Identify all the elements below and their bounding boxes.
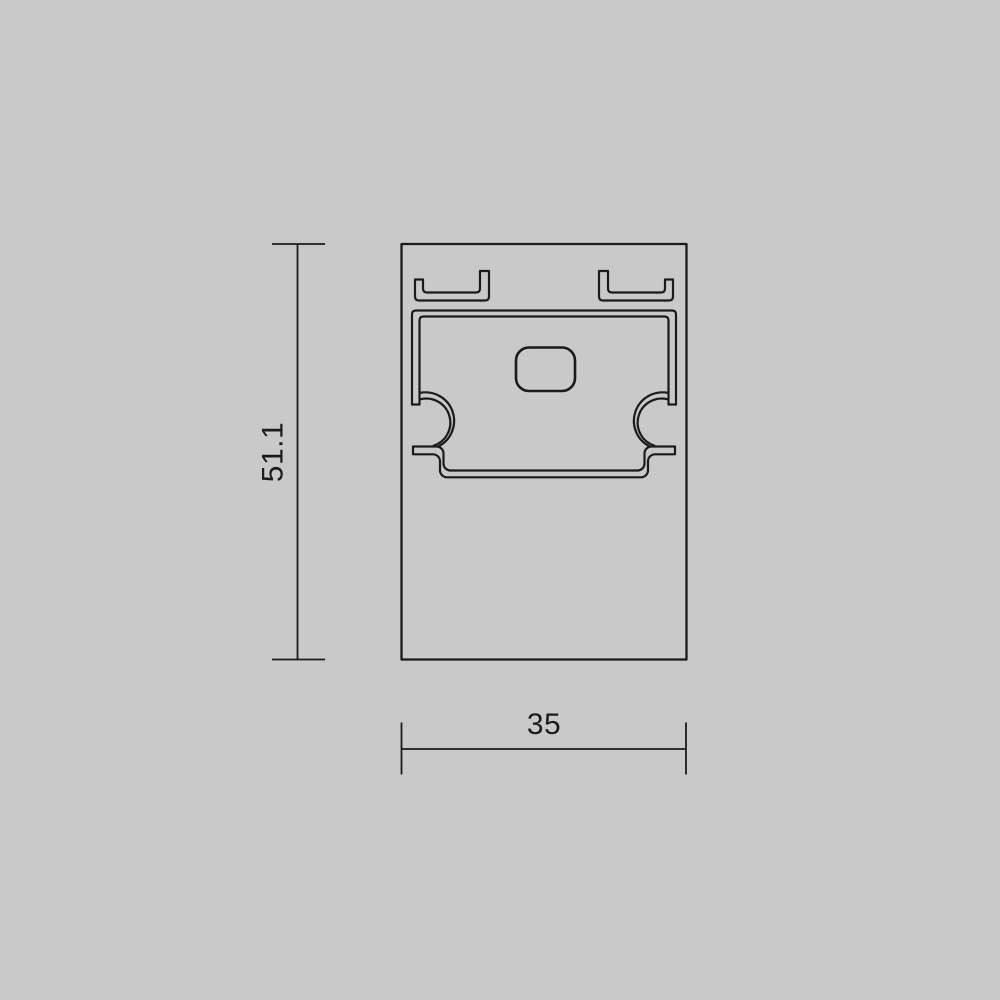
height-dimension-label: 51.1 bbox=[257, 422, 290, 482]
drawing-background bbox=[0, 0, 1000, 1000]
profile-cross-section-drawing: 51.1 35 bbox=[0, 0, 1000, 1000]
technical-drawing-canvas: 51.1 35 bbox=[0, 0, 1000, 1000]
width-dimension-label: 35 bbox=[527, 708, 561, 741]
